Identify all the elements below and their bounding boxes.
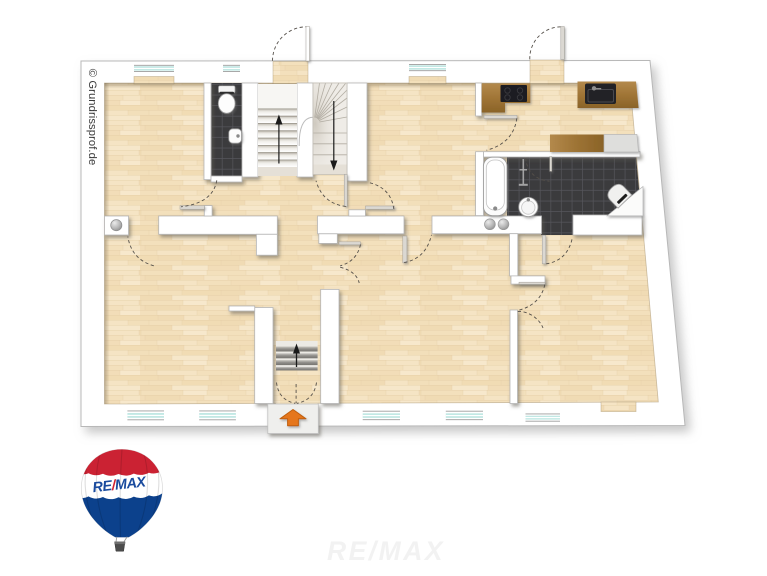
svg-text:RE/MAX: RE/MAX bbox=[327, 536, 445, 566]
svg-text:© Grundrissprof.de: © Grundrissprof.de bbox=[86, 69, 98, 165]
